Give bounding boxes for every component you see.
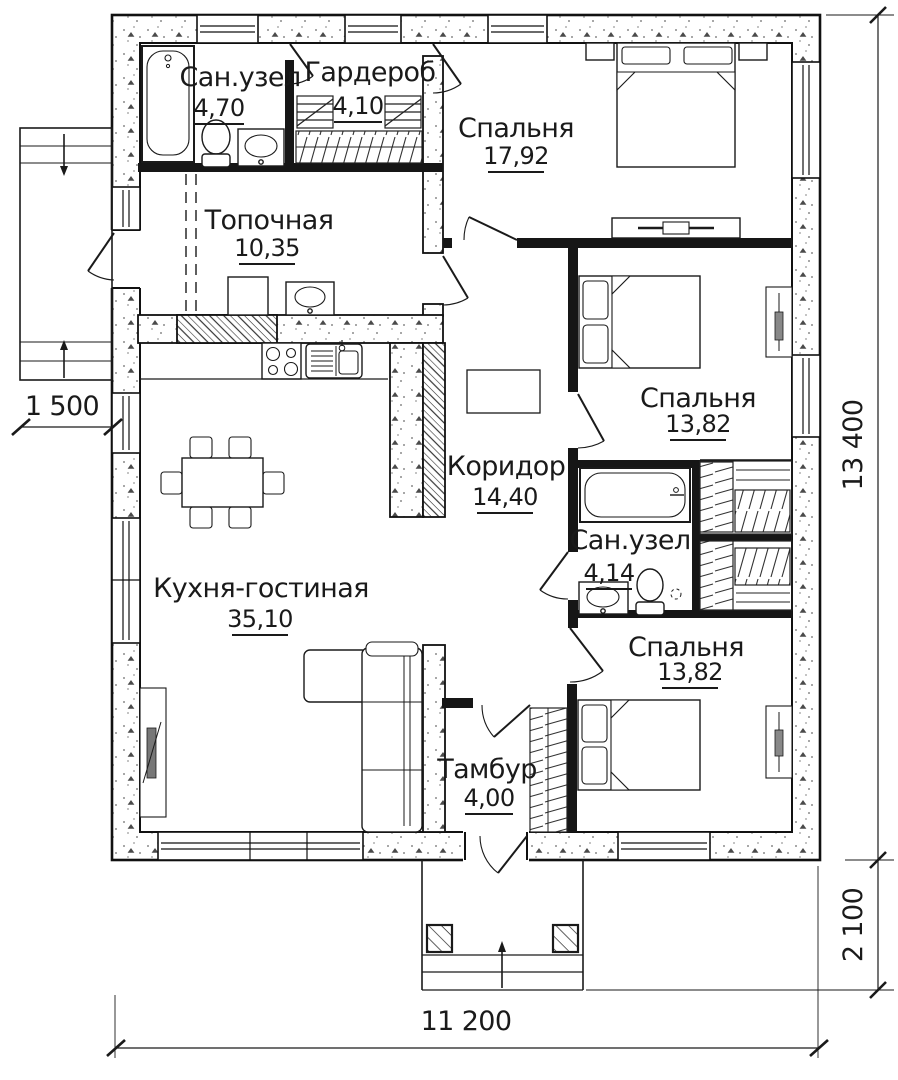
svg-text:4,00: 4,00 [463,784,514,812]
floor-drain [671,589,681,599]
dim-house-width: 11 200 [421,1006,512,1037]
toilet-1 [202,120,230,167]
bed-bedroom3 [578,700,700,790]
dresser-bedroom1 [612,218,740,238]
svg-text:Коридор: Коридор [447,451,566,482]
svg-text:Сан.узел: Сан.узел [569,525,690,556]
tv-unit [140,688,166,817]
porch-column-left [427,925,452,952]
dim-porch-depth: 2 100 [838,888,869,962]
label-bedroom-3: Спальня 13,82 [628,632,744,688]
window-top-2 [345,15,401,43]
bed-bedroom2 [579,276,700,368]
stove [262,343,301,379]
label-bathroom-2: Сан.узел 4,14 [569,525,690,589]
sink-1 [238,129,284,166]
kitchen-sink [306,340,362,378]
window-left-boiler [112,187,140,230]
window-right-bedroom1 [792,62,820,178]
svg-text:14,40: 14,40 [472,483,538,511]
mirror-bedroom2 [766,287,792,357]
window-bottom-bedroom3 [618,832,710,860]
vestibule-door-leaf [494,705,530,737]
bedroom2-door-leaf [578,394,604,441]
svg-text:13,82: 13,82 [657,658,723,686]
corridor-cabinet [467,370,540,413]
label-boiler-room: Топочная 10,35 [204,205,334,264]
svg-text:13,82: 13,82 [665,410,731,438]
entrance-porch [422,860,583,990]
dim-house-height: 13 400 [838,400,869,491]
window-right-bedroom2 [792,355,820,437]
svg-text:Гардероб: Гардероб [305,57,436,88]
mirror-bedroom3 [766,706,792,778]
label-bedroom-2: Спальня 13,82 [640,383,756,440]
bathroom2-door-leaf [540,552,568,590]
floor-plan-drawing: 1 500 13 400 2 100 11 200 Сан.узел 4,70 … [0,0,898,1080]
window-top-3 [488,15,547,43]
bedroom3-door-leaf [570,628,603,671]
label-vestibule: Тамбур 4,00 [436,754,537,814]
sofa [304,642,422,832]
bed-bedroom1 [586,43,767,167]
boiler-door-leaf [443,256,468,298]
svg-text:4,14: 4,14 [583,559,634,587]
vent-column-hatch [423,343,445,517]
toilet-2 [636,569,664,615]
wardrobe-unit-left [297,96,333,128]
closet-bedroom3 [700,541,792,610]
svg-text:Спальня: Спальня [458,113,574,144]
bedroom1-door-leaf [469,217,517,240]
closet-bedroom2 [700,461,792,534]
label-corridor: Коридор 14,40 [447,451,566,513]
svg-text:4,10: 4,10 [332,92,383,120]
wardrobe-unit-right [385,96,421,128]
porch-column-right [553,925,578,952]
svg-text:10,35: 10,35 [234,234,300,262]
boiler-sink [286,282,334,315]
washer [228,277,268,315]
wardrobe-rail [296,131,422,163]
svg-text:Топочная: Топочная [204,205,334,236]
label-bathroom-1: Сан.узел 4,70 [179,62,300,124]
label-kitchen-living: Кухня-гостиная 35,10 [153,573,369,635]
dining-table [161,437,284,528]
window-top-1 [197,15,258,43]
svg-text:17,92: 17,92 [483,142,549,170]
svg-text:Сан.узел: Сан.узел [179,62,300,93]
left-porch [20,128,112,380]
label-bedroom-1: Спальня 17,92 [458,113,574,172]
bathtub-2 [580,468,690,522]
svg-text:Кухня-гостиная: Кухня-гостиная [153,573,369,604]
boiler-exterior-door-opening [110,230,142,288]
window-bottom-kitchen [158,832,363,860]
vent-shaft-hatch [177,315,277,343]
dim-left-porch: 1 500 [25,391,99,422]
chimney-dashed [186,174,196,313]
svg-text:Тамбур: Тамбур [436,754,537,785]
window-left-kitchen2 [112,518,140,643]
svg-text:4,70: 4,70 [193,94,244,122]
svg-text:35,10: 35,10 [227,605,293,633]
floor-plan: 1 500 13 400 2 100 11 200 Сан.узел 4,70 … [0,0,898,1080]
